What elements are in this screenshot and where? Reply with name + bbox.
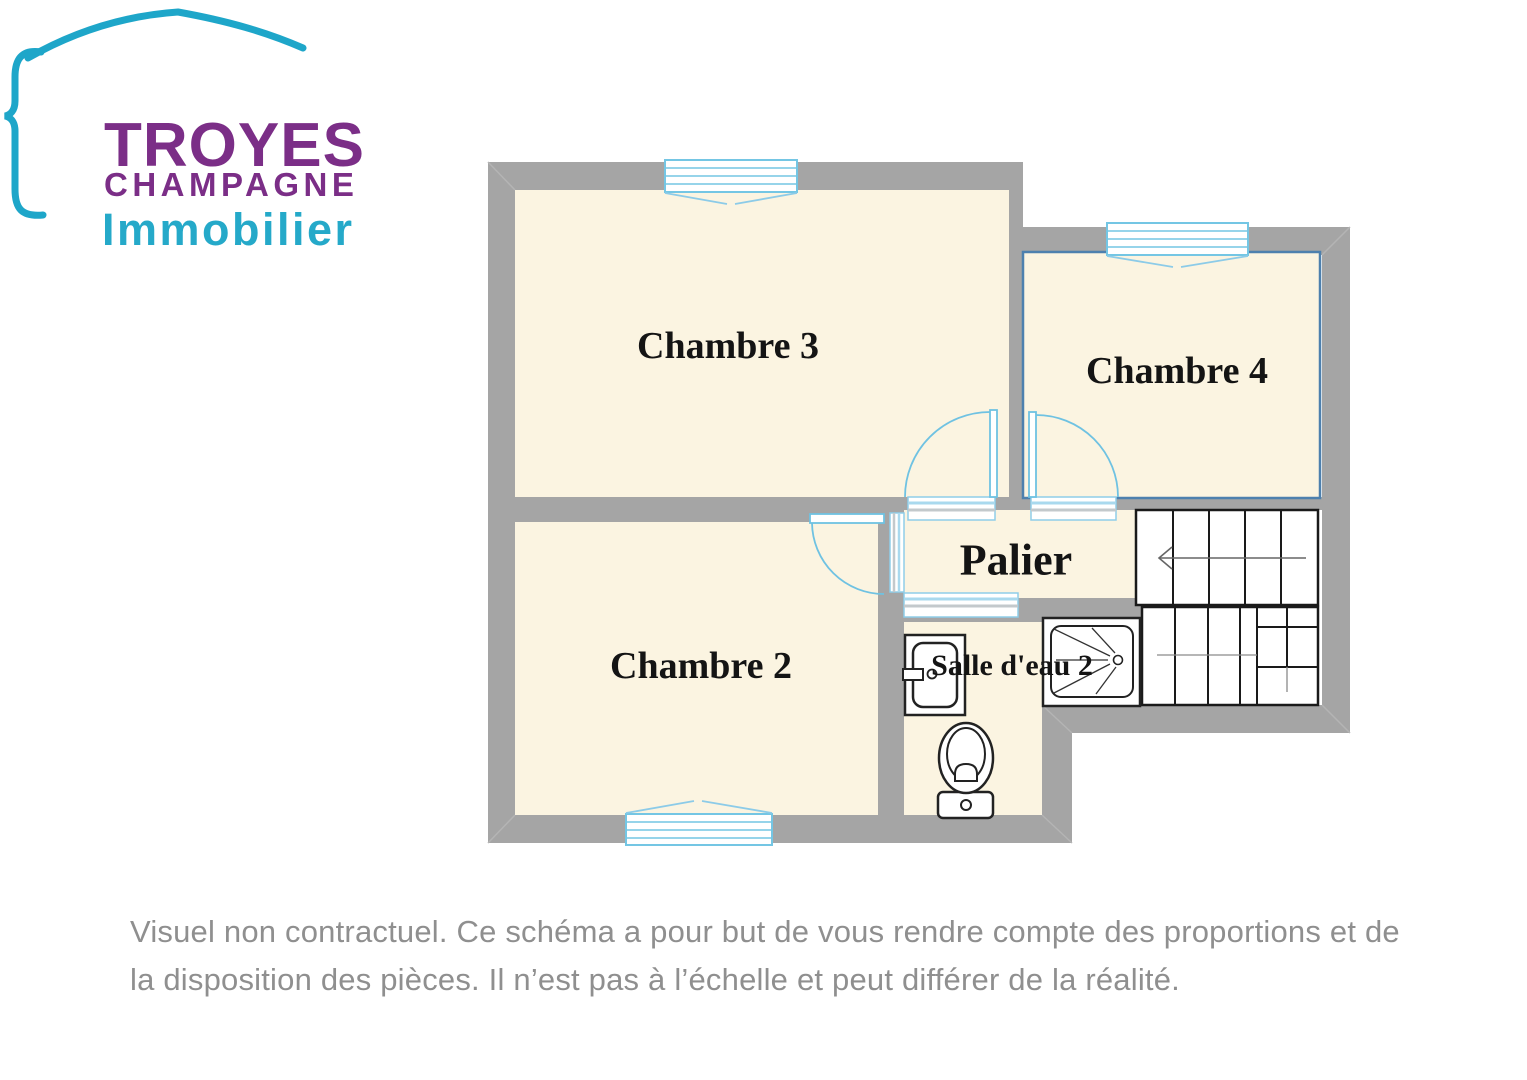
room-label-chambre-2: Chambre 2 [610, 644, 792, 688]
disclaimer-line-2: la disposition des pièces. Il n’est pas … [130, 956, 1400, 1004]
room-label-chambre-3: Chambre 3 [637, 324, 819, 368]
disclaimer-text: Visuel non contractuel. Ce schéma a pour… [130, 908, 1400, 1004]
room-label-palier: Palier [960, 535, 1072, 586]
threshold-chambre3-door [908, 497, 995, 520]
threshold-chambre4-door [1031, 497, 1116, 520]
threshold-salle-deau-door [904, 593, 1018, 617]
toilet-icon [938, 723, 993, 818]
room-label-salle-deau-2: Salle d'eau 2 [931, 649, 1093, 683]
room-label-chambre-4: Chambre 4 [1086, 349, 1268, 393]
disclaimer-line-1: Visuel non contractuel. Ce schéma a pour… [130, 908, 1400, 956]
staircase [1136, 510, 1318, 705]
threshold-chambre2-door [890, 513, 904, 592]
page: TROYES CHAMPAGNE Immobilier [0, 0, 1527, 1080]
